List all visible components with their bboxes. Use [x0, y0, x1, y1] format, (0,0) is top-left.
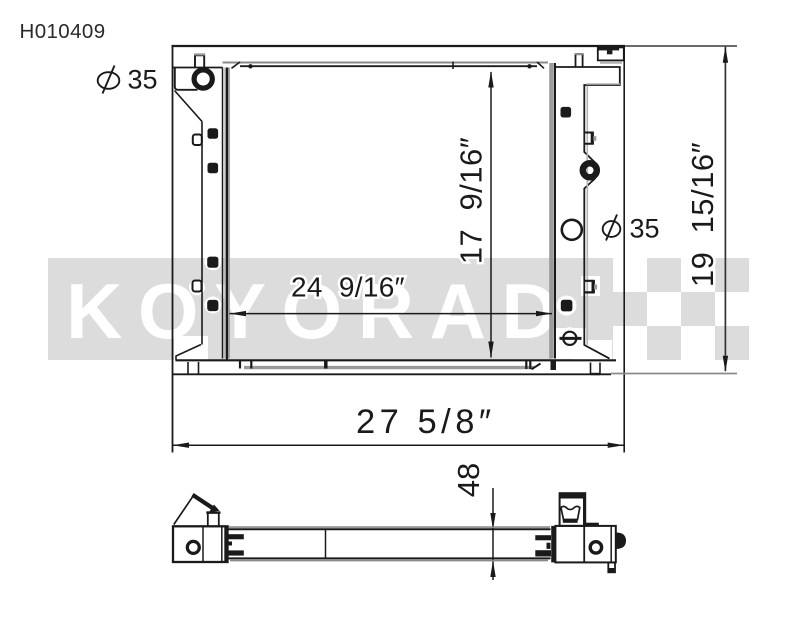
svg-text:24 9/16″: 24 9/16″	[291, 272, 405, 303]
svg-text:48: 48	[451, 463, 486, 497]
svg-text:19 15/16″: 19 15/16″	[685, 142, 720, 287]
svg-text:27 5/8″: 27 5/8″	[356, 403, 496, 441]
svg-text:H010409: H010409	[20, 20, 106, 43]
svg-text:35: 35	[630, 214, 660, 244]
svg-text:17 9/16″: 17 9/16″	[454, 137, 489, 265]
svg-text:35: 35	[128, 65, 158, 95]
